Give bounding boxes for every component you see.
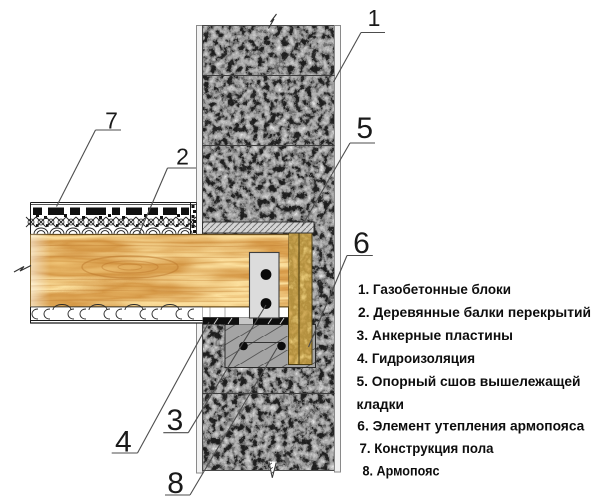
svg-text:1. Газобетонные блоки: 1. Газобетонные блоки: [358, 282, 511, 297]
svg-text:2. Деревянные балки перекрытий: 2. Деревянные балки перекрытий: [358, 305, 591, 320]
svg-text:4: 4: [115, 426, 132, 459]
svg-text:6: 6: [353, 227, 370, 260]
svg-text:2: 2: [176, 144, 189, 170]
svg-text:8. Армопояс: 8. Армопояс: [363, 464, 440, 479]
svg-text:4. Гидроизоляция: 4. Гидроизоляция: [357, 351, 475, 366]
svg-text:1: 1: [368, 5, 381, 31]
svg-text:7. Конструкция пола: 7. Конструкция пола: [360, 441, 494, 456]
svg-text:3: 3: [167, 404, 184, 437]
svg-text:7: 7: [105, 108, 118, 134]
svg-text:8: 8: [167, 467, 184, 500]
svg-text:6. Элемент утепления армопояса: 6. Элемент утепления армопояса: [357, 419, 584, 434]
svg-text:5. Опорный сшов вышележащей: 5. Опорный сшов вышележащей: [357, 374, 581, 389]
svg-text:кладки: кладки: [357, 397, 405, 412]
svg-text:5: 5: [356, 112, 373, 145]
svg-text:3. Анкерные пластины: 3. Анкерные пластины: [357, 328, 514, 343]
